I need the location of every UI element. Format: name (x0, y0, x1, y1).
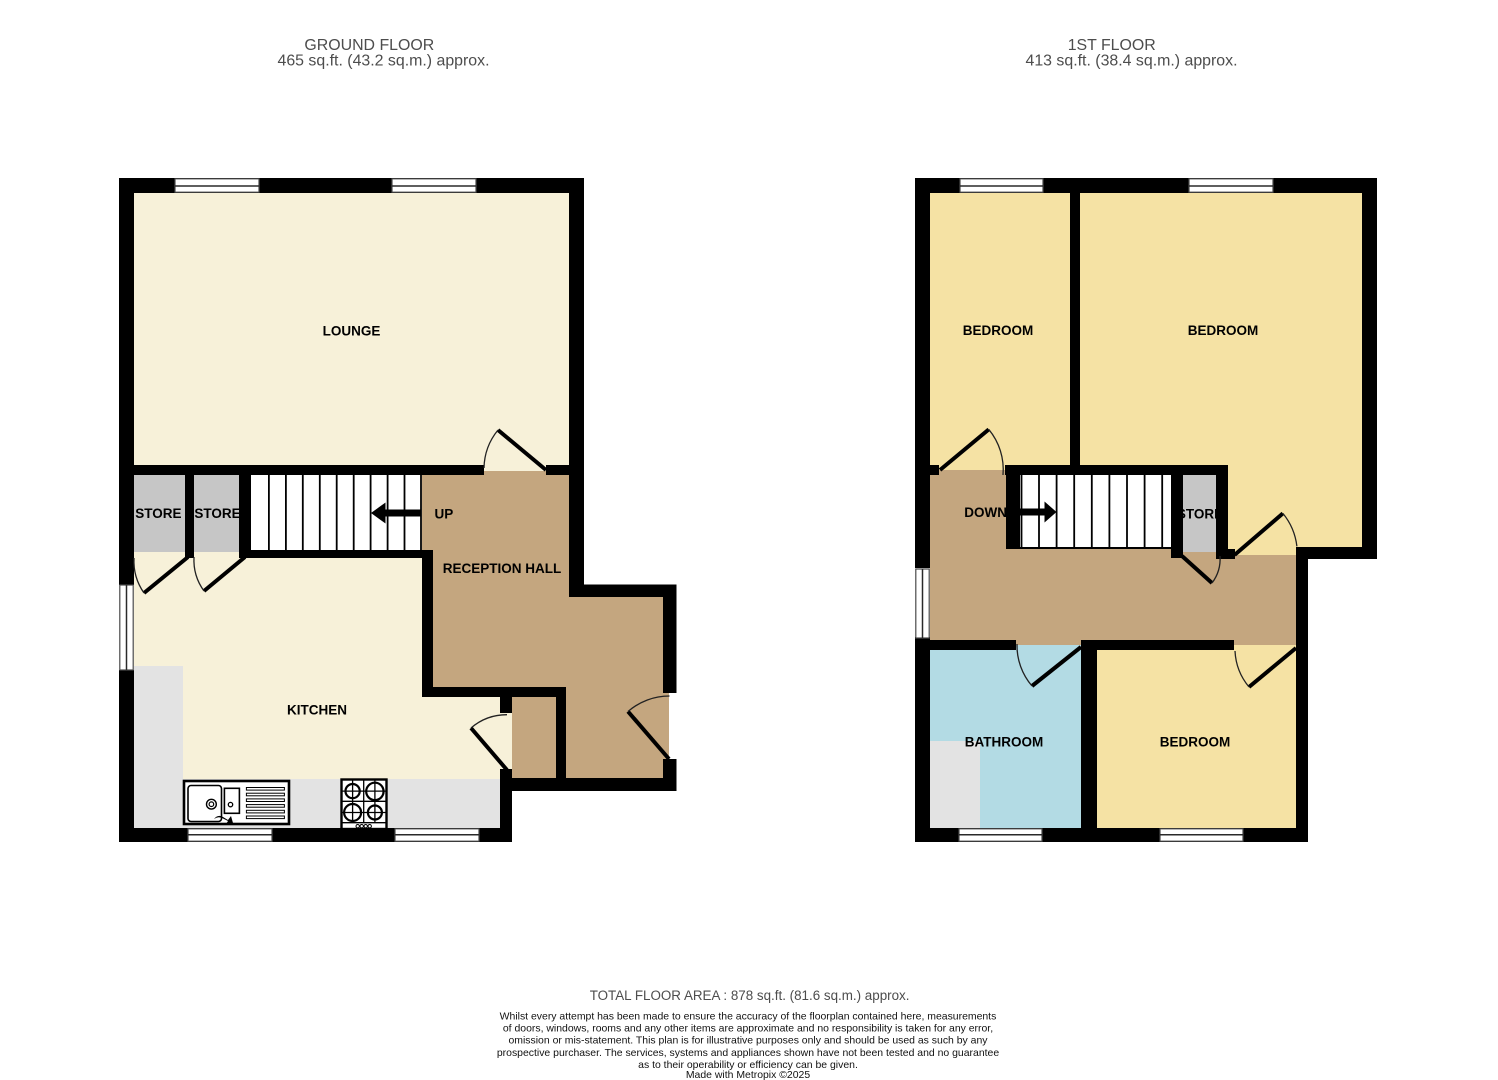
svg-text:413 sq.ft. (38.4 sq.m.) approx: 413 sq.ft. (38.4 sq.m.) approx. (1026, 53, 1238, 70)
svg-text:BEDROOM: BEDROOM (963, 323, 1034, 338)
svg-text:TOTAL FLOOR AREA : 878 sq.ft.: TOTAL FLOOR AREA : 878 sq.ft. (81.6 sq.m… (590, 988, 910, 1003)
svg-text:Whilst every attempt has been: Whilst every attempt has been made to en… (500, 1011, 997, 1022)
svg-text:BEDROOM: BEDROOM (1160, 734, 1231, 749)
svg-text:STORE: STORE (1177, 506, 1223, 521)
svg-text:LOUNGE: LOUNGE (323, 324, 381, 339)
svg-text:STORE: STORE (194, 506, 240, 521)
svg-text:STORE: STORE (135, 506, 181, 521)
svg-text:KITCHEN: KITCHEN (287, 702, 347, 717)
svg-text:RECEPTION HALL: RECEPTION HALL (443, 561, 562, 576)
svg-text:omission or mis-statement. Thi: omission or mis-statement. This plan is … (508, 1036, 988, 1047)
svg-text:Made with Metropix ©2025: Made with Metropix ©2025 (686, 1070, 810, 1080)
svg-text:465 sq.ft. (43.2 sq.m.) approx: 465 sq.ft. (43.2 sq.m.) approx. (278, 53, 490, 70)
svg-text:of doors, windows, rooms and a: of doors, windows, rooms and any other i… (503, 1024, 993, 1035)
svg-text:DOWN: DOWN (964, 505, 1007, 520)
svg-text:BEDROOM: BEDROOM (1188, 323, 1259, 338)
svg-text:prospective purchaser. The ser: prospective purchaser. The services, sys… (497, 1048, 999, 1059)
svg-text:BATHROOM: BATHROOM (965, 734, 1044, 749)
svg-text:UP: UP (435, 506, 454, 521)
